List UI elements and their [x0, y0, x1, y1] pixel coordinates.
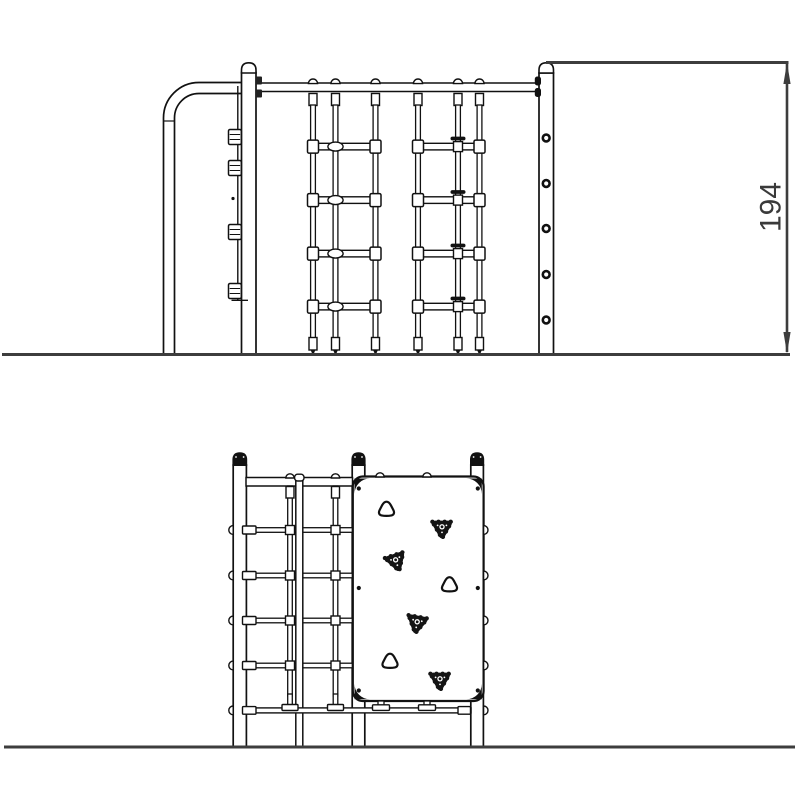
net-middle-post-cap [295, 474, 304, 481]
rope-loop-bump [484, 571, 488, 580]
net-rope-connector [331, 571, 340, 580]
rope-ferrule [476, 94, 484, 106]
rung-end-connector [474, 300, 485, 313]
rope-loop-bump [475, 79, 484, 84]
rung-end-connector [413, 140, 424, 153]
rope-ferrule [458, 707, 471, 715]
rope-loop-bump [376, 473, 384, 477]
rung-end-connector [308, 300, 319, 313]
panel-mount-clamp [229, 130, 242, 145]
side-elevation-view: 194 [2, 63, 791, 356]
panel-bolt-dot-side [231, 197, 234, 200]
rail-clamp-fitting [535, 88, 541, 97]
net-rope-connector [286, 616, 295, 625]
cap-bolt-dot [243, 456, 245, 458]
rope-ferrule [454, 94, 462, 106]
ladder-rung [312, 197, 377, 204]
ladder-rung [417, 197, 481, 204]
post-cap [539, 63, 554, 73]
rope-ferrule [332, 487, 340, 499]
rope-ferrule [476, 338, 484, 351]
rail-bolt [256, 77, 262, 85]
rope-ferrule [414, 94, 422, 106]
net-rope-connector [286, 661, 295, 670]
panel-bolt-dot [476, 586, 480, 590]
net-rope-connector [331, 616, 340, 625]
top-rail [242, 83, 541, 92]
net-bottom-rope [246, 708, 471, 713]
cap-bolt-dot [473, 456, 475, 458]
rope-ferrule [372, 94, 380, 106]
ladder-rung [312, 303, 377, 310]
rope-rung-connector [454, 142, 463, 152]
rope-foot-base [328, 705, 344, 711]
rung-end-connector [308, 194, 319, 207]
net-rope-connector [331, 661, 340, 670]
post-cap-front [232, 452, 247, 466]
ladder-rung [417, 143, 481, 150]
rung-end-connector [413, 247, 424, 260]
rope-loop-bump [229, 571, 233, 580]
cap-bolt-dot [354, 456, 356, 458]
rung-end-connector [474, 140, 485, 153]
rope-loop-bump [484, 526, 488, 535]
rope-ferrule [243, 572, 257, 580]
climbing-wall-panel [353, 477, 484, 702]
rung-end-connector [474, 194, 485, 207]
rope-loop-bump [229, 526, 233, 535]
rung-end-connector [370, 194, 381, 207]
rope-rung-connector [454, 302, 463, 312]
rung-end-connector [370, 140, 381, 153]
rung-end-connector [413, 194, 424, 207]
rope-loop-bump [423, 473, 431, 477]
post-cap [242, 63, 257, 73]
rung-end-connector [413, 300, 424, 313]
rope-foot-base [282, 705, 298, 711]
rung-end-connector [474, 247, 485, 260]
dimension-arrow-down [783, 332, 790, 354]
rope-rung-connector [454, 195, 463, 205]
panel-mount-clamp [229, 284, 242, 299]
net-rope-connector [286, 526, 295, 535]
rope-loop-bump [371, 79, 380, 84]
rope-ladders-side [308, 79, 486, 356]
panel-foot-base [373, 705, 390, 711]
rope-ferrule [243, 617, 257, 625]
rope-clamp-disc [451, 244, 466, 248]
rope-ferrule [332, 94, 340, 106]
drawing-svg: 194 [0, 0, 800, 800]
post-cap-front [470, 452, 484, 466]
rope-rung-connector [454, 249, 463, 259]
rope-loop-bump [229, 661, 233, 670]
rope-rung-clamp [328, 196, 343, 205]
rope-loop-bump [484, 706, 488, 715]
rope-ferrule [309, 94, 317, 106]
cap-bolt-dot [480, 456, 482, 458]
rope-ferrule [414, 338, 422, 351]
front-post [233, 465, 246, 747]
rope-loop-bump [286, 474, 294, 478]
cap-bolt-dot [235, 456, 237, 458]
panel-bolt-dot [357, 586, 361, 590]
panel-foot-base [419, 705, 436, 711]
rope-ferrule [332, 338, 340, 351]
rope-clamp-disc [451, 137, 466, 141]
rope-loop-bump [331, 474, 339, 478]
overhead-arch-pipe-outer [164, 83, 244, 355]
side-post-left [242, 73, 257, 355]
ladder-rung [417, 250, 481, 257]
rope-ferrule [372, 338, 380, 351]
ladder-rung [312, 143, 377, 150]
rope-loop-bump [331, 79, 340, 84]
rail-clamp-fitting [535, 77, 541, 86]
side-post-right [539, 73, 554, 355]
rung-end-connector [308, 140, 319, 153]
panel-mount-clamp [229, 225, 242, 240]
post-cap-front [351, 452, 365, 466]
dimension-label: 194 [755, 182, 788, 232]
rung-end-connector [370, 300, 381, 313]
rope-loop-bump [229, 616, 233, 625]
rope-rung-clamp [328, 142, 343, 151]
rope-ferrule [243, 526, 257, 534]
rope-loop-bump [308, 79, 317, 84]
panel-bolt-dot [476, 486, 480, 490]
rope-ferrule [309, 338, 317, 351]
rope-loop-bump [229, 706, 233, 715]
panel-mount-clamp [229, 161, 242, 176]
rope-ferrule [243, 662, 257, 670]
panel-bolt-dot [357, 486, 361, 490]
rail-bolt [256, 90, 262, 98]
side-details [229, 130, 550, 324]
rope-rung-clamp [328, 249, 343, 258]
rope-clamp-disc [451, 190, 466, 194]
ladder-rung [417, 303, 481, 310]
dimension-arrow-up [783, 63, 790, 85]
rope-loop-bump [413, 79, 422, 84]
net-rope-connector [331, 526, 340, 535]
rope-clamp-disc [451, 297, 466, 301]
net-rope-connector [286, 571, 295, 580]
rung-end-connector [308, 247, 319, 260]
rope-ferrule [243, 707, 257, 715]
rope-loop-bump [484, 616, 488, 625]
panel-bolt-dot [357, 688, 361, 692]
cap-bolt-dot [361, 456, 363, 458]
front-elevation-view [4, 452, 795, 747]
rope-ferrule [454, 338, 462, 351]
rope-rung-clamp [328, 302, 343, 311]
rope-loop-bump [453, 79, 462, 84]
technical-drawing-canvas: 194 [0, 0, 800, 800]
rung-end-connector [370, 247, 381, 260]
ladder-rung [312, 250, 377, 257]
rope-loop-bump [484, 661, 488, 670]
rope-ferrule [286, 487, 294, 499]
panel-bolt-dot [476, 688, 480, 692]
